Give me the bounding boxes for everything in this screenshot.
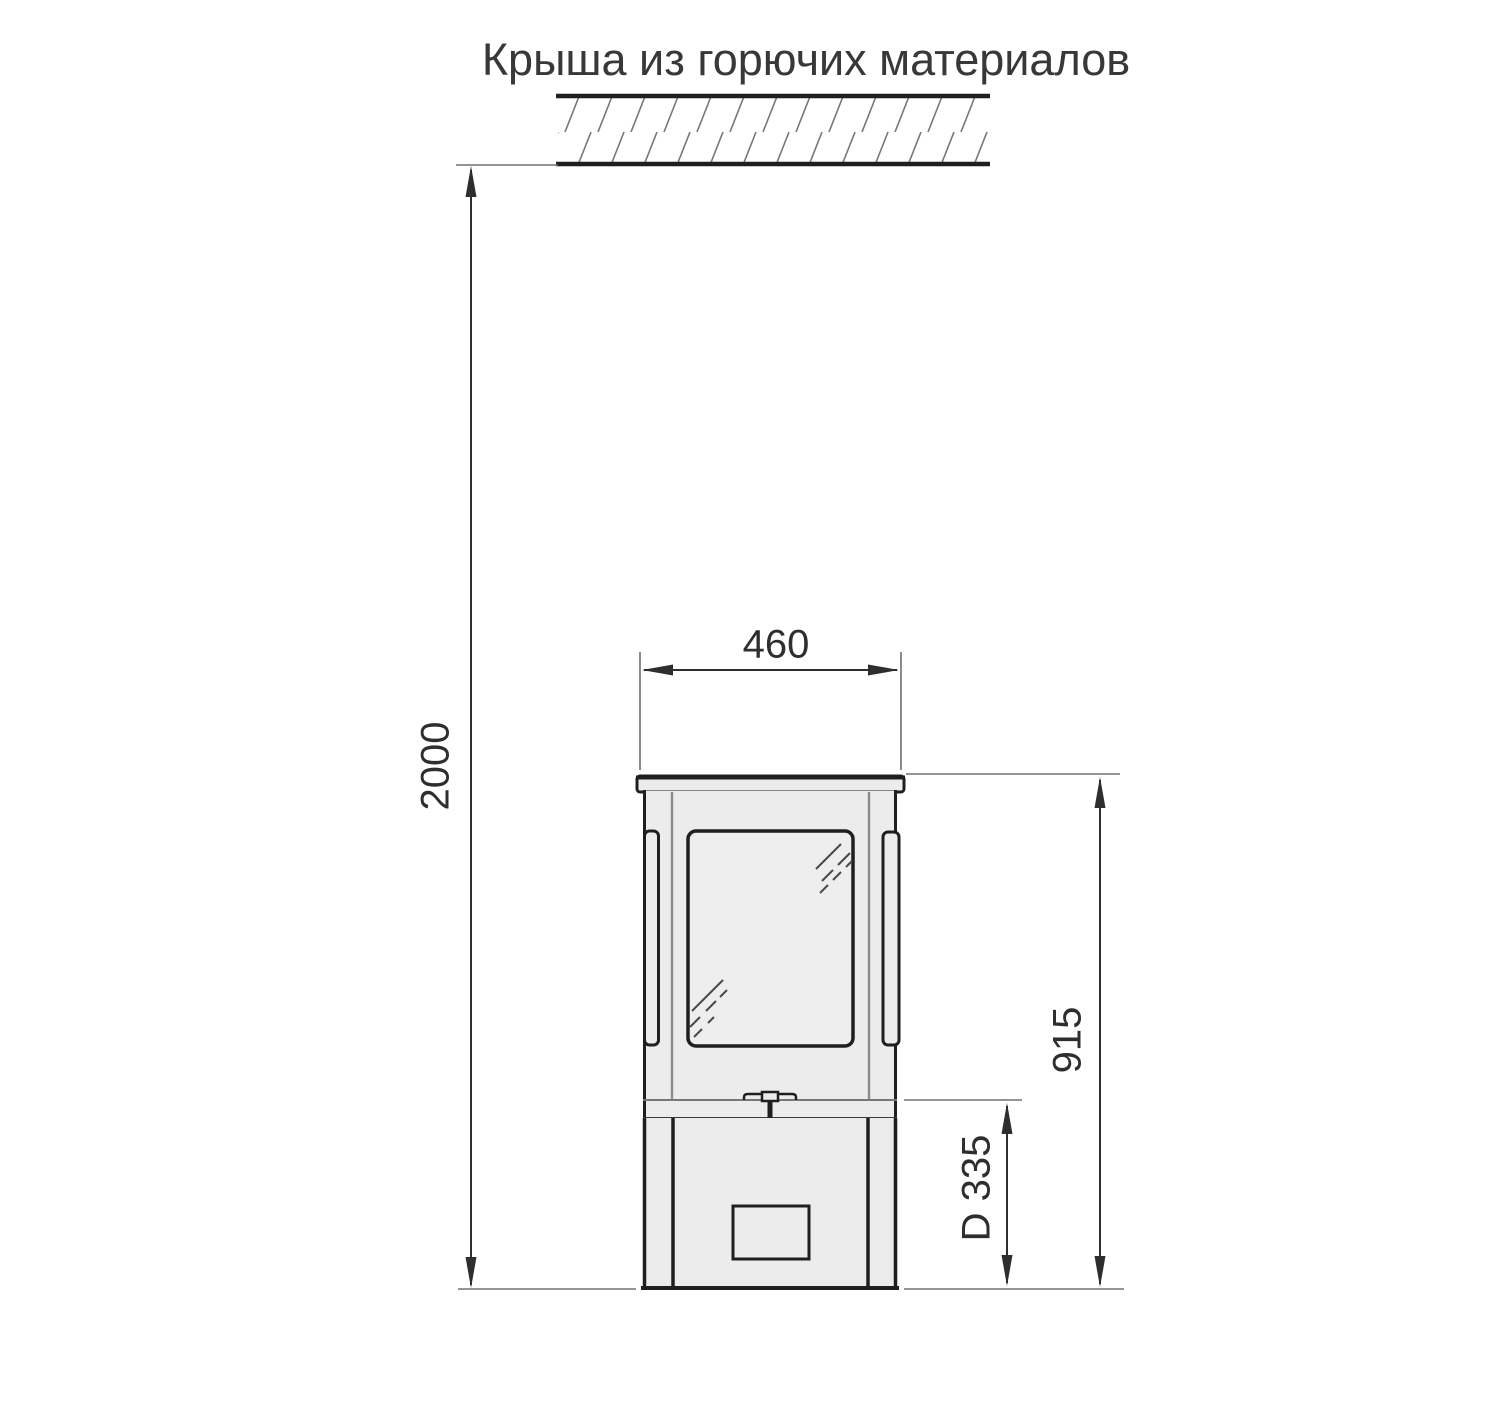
side-glass-right <box>883 832 899 1045</box>
side-glass-left <box>645 831 659 1045</box>
stove-drawing <box>636 776 905 1289</box>
flue-dimension-label: D 335 <box>955 1135 1000 1242</box>
arrow-right-icon <box>868 665 899 676</box>
combustible-roof-hatch <box>556 96 990 164</box>
flue-dimension-d335 <box>1002 1103 1013 1286</box>
arrow-down-icon <box>1002 1255 1013 1286</box>
roof-hatch-fill <box>558 97 990 163</box>
height-dimension-915 <box>1095 777 1106 1287</box>
clearance-dimension-2000 <box>466 166 477 1288</box>
arrow-up-icon <box>1002 1103 1013 1134</box>
arrow-down-icon <box>466 1257 477 1288</box>
drawing-linework <box>0 0 1500 1427</box>
stove-base <box>643 1118 897 1289</box>
arrow-up-icon <box>1095 777 1106 808</box>
ash-door <box>733 1206 809 1259</box>
arrow-left-icon <box>642 665 673 676</box>
arrow-down-icon <box>1095 1256 1106 1287</box>
clearance-dimension-label: 2000 <box>414 722 459 811</box>
stove-clearance-drawing: Крыша из горючих материалов 460 2000 915… <box>0 0 1500 1427</box>
height-dimension-label: 915 <box>1046 1007 1091 1074</box>
width-dimension-label: 460 <box>743 623 810 668</box>
door-glass <box>688 831 853 1046</box>
diagram-title: Крыша из горючих материалов <box>482 34 1130 86</box>
handle-knob <box>762 1092 778 1101</box>
arrow-up-icon <box>466 166 477 197</box>
